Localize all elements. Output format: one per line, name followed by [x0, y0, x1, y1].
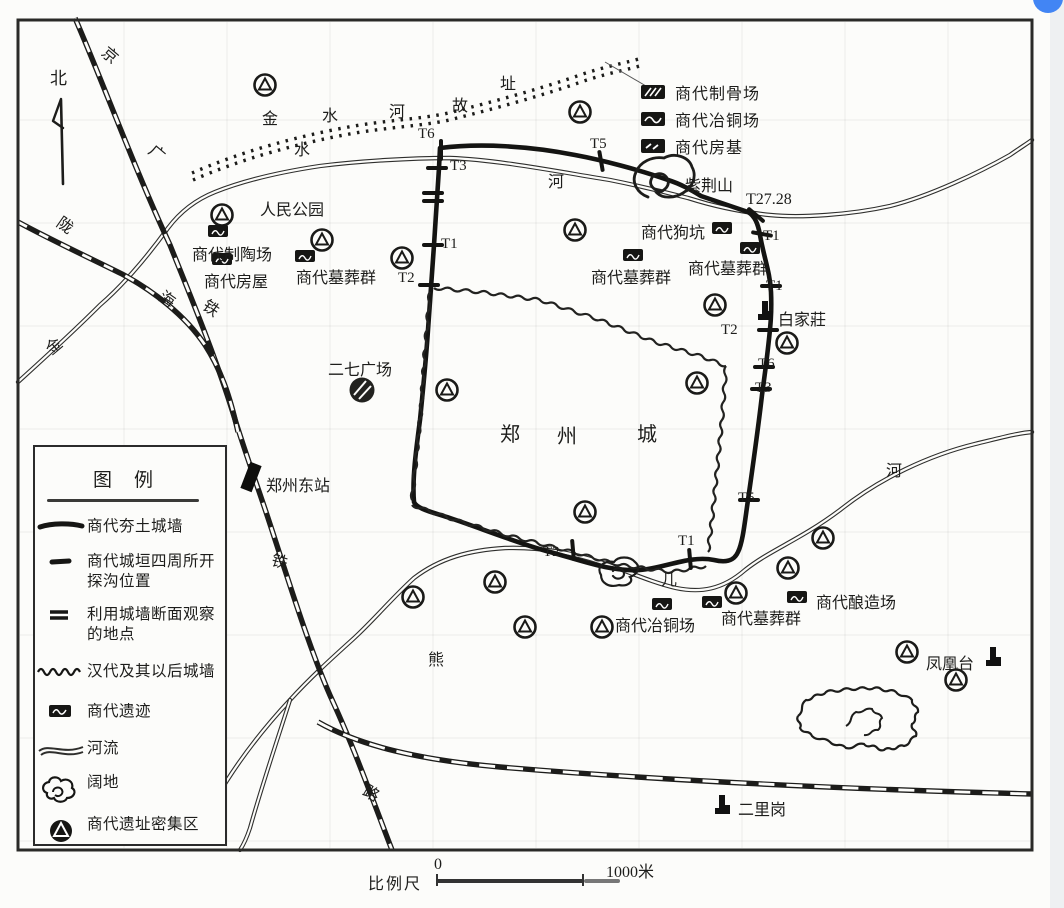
- mini-legend-label: 商代冶铜场: [675, 107, 760, 131]
- site-cluster-icon: [255, 75, 276, 96]
- map-label: 商代墓葬群: [721, 605, 801, 629]
- shang-relic-icon: [652, 598, 672, 610]
- map-label: T27.28: [746, 191, 792, 209]
- map-label: T1: [763, 228, 780, 245]
- shang-relic-icon: [787, 591, 807, 603]
- mini-legend: 商代制骨场 商代冶铜场 商代房基: [640, 78, 760, 159]
- scale-bar: [436, 878, 620, 884]
- bone-workshop-icon: [640, 84, 666, 100]
- site-cluster-icon: [437, 380, 458, 401]
- map-label: 城: [637, 418, 657, 447]
- map-label: 商代酿造场: [816, 589, 896, 613]
- legend-row: 商代遗迹: [35, 702, 217, 722]
- map-label: T2: [398, 270, 415, 287]
- mini-legend-label: 商代房基: [675, 134, 743, 158]
- map-page: { "page": { "background": "#fcfcfa", "in…: [0, 0, 1064, 908]
- mini-legend-row: 商代冶铜场: [640, 105, 760, 132]
- site-cluster-icon: [35, 817, 87, 845]
- legend-row: 商代夯土城墙: [35, 517, 217, 537]
- site-cluster-icon: [312, 230, 333, 251]
- map-label: 商代制陶场: [192, 241, 272, 265]
- map-label: 白家莊: [778, 306, 826, 330]
- landmark-icon: [986, 647, 1001, 666]
- legend-label: 利用城墙断面观察的地点: [87, 605, 217, 645]
- map-label: 二里岗: [738, 796, 786, 820]
- map-label: T2: [543, 544, 560, 561]
- map-label: 儿: [661, 566, 677, 590]
- map-label: 北: [50, 64, 67, 89]
- legend-title-underline: [47, 499, 199, 502]
- map-label: T3: [755, 380, 772, 397]
- shang-relic-icon: [208, 225, 228, 237]
- site-cluster-icon: [897, 642, 918, 663]
- erqi-square-icon: [350, 378, 375, 403]
- legend-label: 汉代及其以后城墙: [87, 662, 217, 682]
- shang-relic-icon: [295, 250, 315, 262]
- scale-bar-area: 比例尺 0 1000米: [360, 856, 700, 898]
- wall-section-mark-icon: [35, 607, 87, 623]
- shang-relic-icon: [35, 704, 87, 718]
- site-cluster-icon: [392, 248, 413, 269]
- map-label: 水: [322, 102, 338, 126]
- site-cluster-icon: [515, 617, 536, 638]
- map-label: 河: [389, 98, 405, 122]
- map-label: T5: [590, 136, 607, 153]
- map-label: 州: [557, 420, 577, 449]
- shang-relic-icon: [623, 249, 643, 261]
- map-label: T1: [766, 278, 783, 295]
- shang-relic-icon: [702, 596, 722, 608]
- map-label: 故: [452, 92, 468, 116]
- site-cluster-icon: [592, 617, 613, 638]
- site-cluster-icon: [726, 583, 747, 604]
- map-label: T6: [758, 356, 775, 373]
- map-label: T1: [678, 533, 695, 550]
- site-cluster-icon: [403, 587, 424, 608]
- map-label: 金: [262, 105, 278, 129]
- shang-relic-icon: [712, 222, 732, 234]
- map-label: 水: [294, 136, 310, 160]
- site-cluster-icon: [485, 572, 506, 593]
- map-label: 址: [500, 70, 516, 94]
- han-wall-icon: [35, 664, 87, 678]
- legend-row: 利用城墙断面观察的地点: [35, 605, 217, 645]
- house-foundation-icon: [640, 138, 666, 154]
- site-cluster-icon: [575, 502, 596, 523]
- map-label: T6: [418, 126, 435, 143]
- rammed-earth-wall-icon: [35, 519, 87, 533]
- map-label: 商代狗坑: [641, 219, 705, 243]
- bronze-workshop-icon: [640, 111, 666, 127]
- legend-label: 商代夯土城墙: [87, 517, 217, 537]
- legend-label: 阔地: [87, 773, 217, 793]
- mini-legend-row: 商代制骨场: [640, 78, 760, 105]
- map-label: 商代墓葬群: [296, 264, 376, 288]
- map-label: 熊: [428, 646, 444, 670]
- legend-row: 商代遗址密集区: [35, 815, 217, 845]
- site-cluster-icon: [212, 205, 233, 226]
- map-label: 人民公园: [260, 196, 324, 220]
- legend-row: 河流: [35, 739, 217, 759]
- enclosed-land-icon: [35, 775, 87, 811]
- map-label: 商代房屋: [204, 268, 268, 292]
- legend-row: 商代城垣四周所开探沟位置: [35, 552, 217, 592]
- shang-relic-icon: [740, 242, 760, 254]
- map-label: T1: [441, 236, 458, 253]
- legend-title: 图例: [93, 465, 175, 492]
- scale-zero: 0: [434, 856, 442, 874]
- map-label: 河: [548, 168, 564, 192]
- legend-label: 商代遗址密集区: [87, 815, 217, 835]
- map-label: 郑: [500, 418, 520, 447]
- site-cluster-icon: [565, 220, 586, 241]
- legend-label: 商代城垣四周所开探沟位置: [87, 552, 217, 592]
- legend-row: 阔地: [35, 773, 217, 811]
- landmark-icon: [715, 795, 730, 814]
- river-icon: [35, 741, 87, 759]
- site-cluster-icon: [687, 373, 708, 394]
- map-label: T5: [738, 490, 755, 507]
- site-cluster-icon: [705, 295, 726, 316]
- map-label: 凤凰台: [926, 650, 974, 674]
- legend-label: 商代遗迹: [87, 702, 217, 722]
- mini-legend-label: 商代制骨场: [675, 80, 760, 104]
- map-label: T2: [721, 322, 738, 339]
- map-label: 商代墓葬群: [591, 264, 671, 288]
- map-label: 郑州东站: [266, 472, 330, 496]
- scale-label: 比例尺: [368, 870, 422, 894]
- site-cluster-icon: [778, 558, 799, 579]
- legend-row: 汉代及其以后城墙: [35, 662, 217, 682]
- map-label: 商代冶铜场: [615, 612, 695, 636]
- site-cluster-icon: [813, 528, 834, 549]
- mini-legend-row: 商代房基: [640, 132, 760, 159]
- site-cluster-icon: [570, 102, 591, 123]
- trench-mark-icon: [35, 554, 87, 568]
- map-label: 商代墓葬群: [688, 255, 768, 279]
- legend-box: 图例 商代夯土城墙 商代城垣四周所开探沟位置 利用城墙断面观察的地点 汉代及其以: [33, 445, 227, 846]
- map-label: T3: [450, 158, 467, 175]
- map-label: 二七广场: [328, 356, 392, 380]
- map-label: 紫荆山: [685, 172, 733, 196]
- site-cluster-icon: [777, 333, 798, 354]
- legend-label: 河流: [87, 739, 217, 759]
- map-label: 河: [886, 457, 902, 481]
